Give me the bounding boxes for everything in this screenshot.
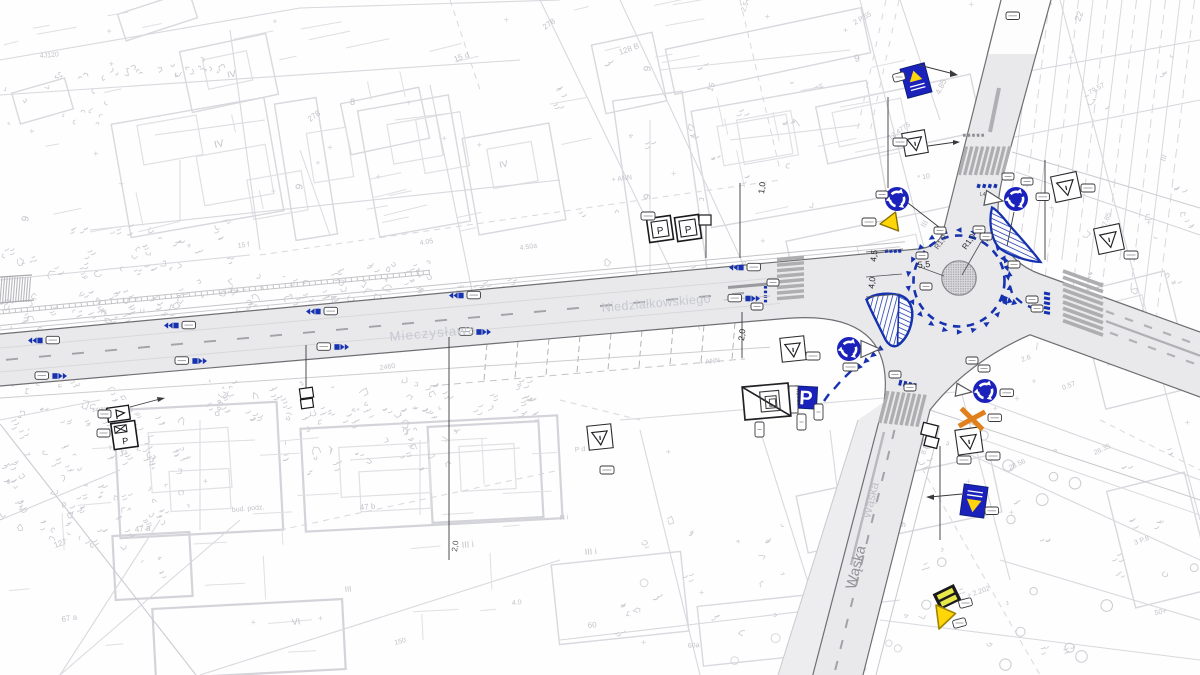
svg-text:2,0: 2,0 — [736, 328, 747, 341]
svg-text:5,5: 5,5 — [917, 259, 930, 270]
svg-text:P d: P d — [575, 446, 586, 454]
svg-text:47 a: 47 a — [134, 524, 151, 534]
svg-text:III: III — [344, 584, 351, 594]
svg-text:8: 8 — [350, 97, 355, 107]
svg-text:60a: 60a — [688, 642, 700, 650]
svg-text:4,0: 4,0 — [866, 276, 877, 289]
svg-text:60: 60 — [587, 620, 597, 630]
svg-text:VI: VI — [291, 616, 300, 627]
svg-text:III i: III i — [584, 546, 597, 557]
svg-text:N i: N i — [560, 514, 570, 522]
svg-text:47 b: 47 b — [359, 502, 376, 512]
svg-text:III i: III i — [461, 539, 474, 550]
svg-text:4.0: 4.0 — [512, 599, 522, 607]
svg-text:1,0: 1,0 — [756, 181, 767, 194]
svg-text:4,5: 4,5 — [868, 249, 879, 262]
svg-text:2,0: 2,0 — [450, 540, 460, 553]
svg-text:Koniec: Koniec — [795, 389, 802, 406]
